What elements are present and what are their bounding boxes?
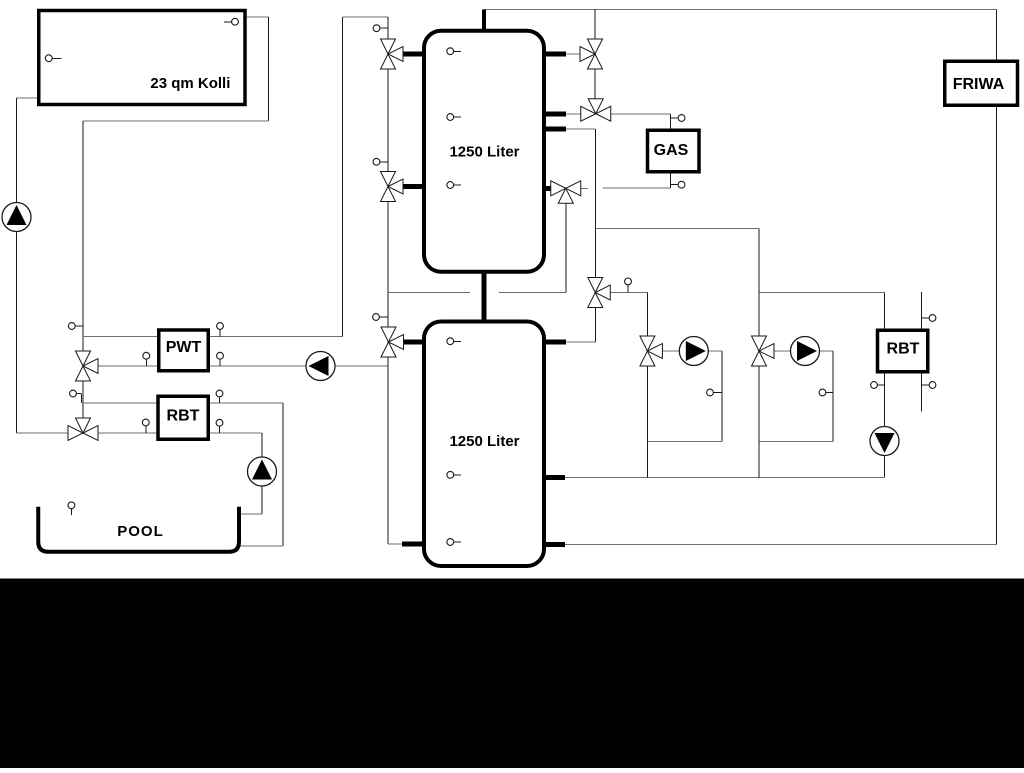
svg-text:PWT: PWT bbox=[166, 339, 202, 356]
svg-text:1250 Liter: 1250 Liter bbox=[449, 433, 519, 450]
svg-text:23 qm Kolli: 23 qm Kolli bbox=[150, 75, 230, 92]
svg-text:FRIWA: FRIWA bbox=[953, 76, 1005, 93]
svg-text:1250 Liter: 1250 Liter bbox=[449, 144, 519, 161]
svg-text:RBT: RBT bbox=[167, 407, 200, 424]
svg-text:POOL: POOL bbox=[117, 523, 164, 540]
svg-text:RBT: RBT bbox=[887, 341, 920, 358]
svg-text:GAS: GAS bbox=[654, 142, 689, 159]
